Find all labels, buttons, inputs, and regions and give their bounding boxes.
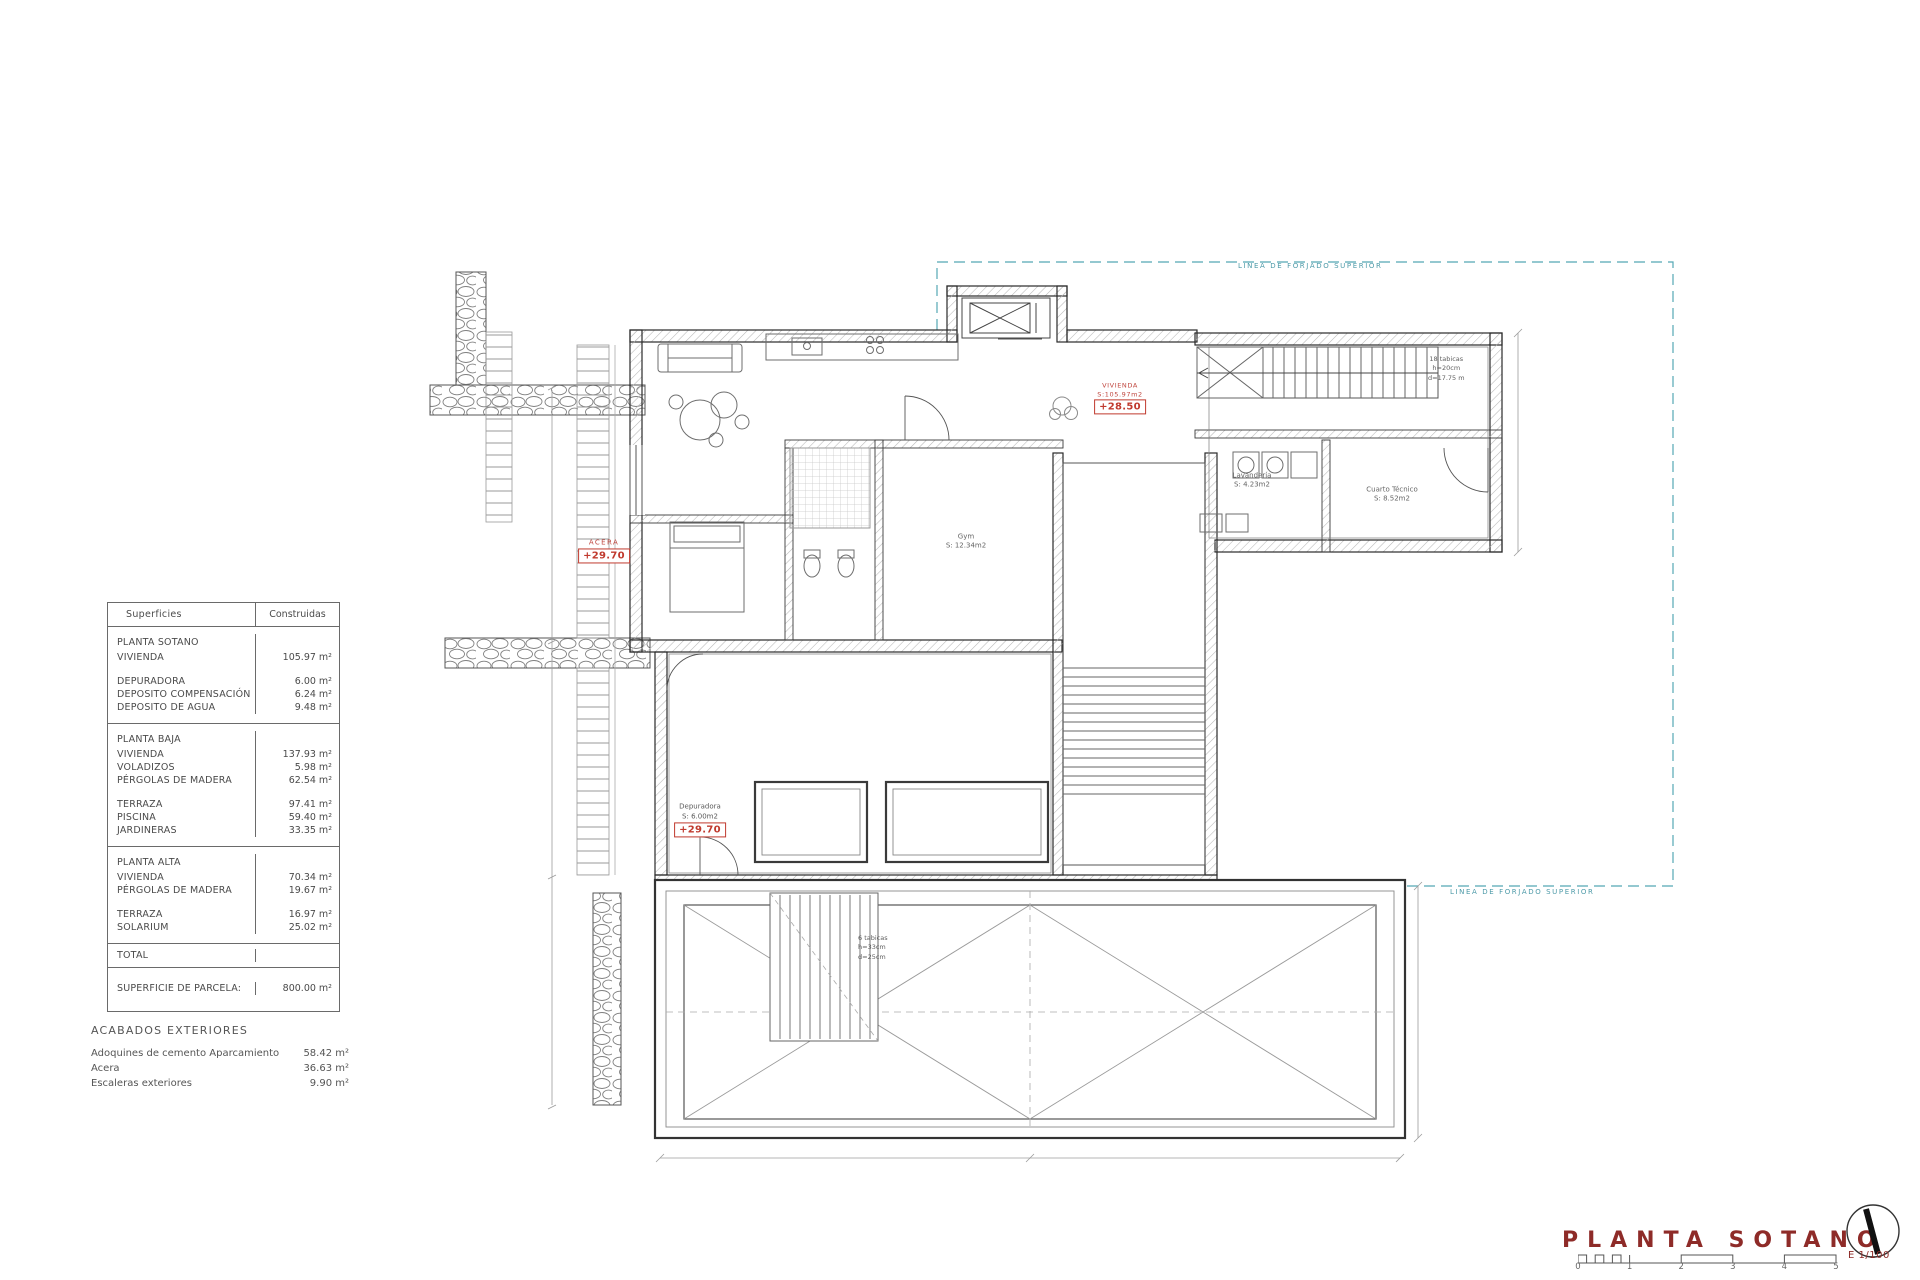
row-value: 16.97 m² [255, 908, 339, 921]
table-row: PÉRGOLAS DE MADERA19.67 m² [108, 884, 339, 897]
row-label: VIVIENDA [108, 652, 255, 663]
scale-tick: 4 [1782, 1262, 1787, 1272]
finish-label: Acera [91, 1061, 120, 1076]
depuradora-level-label: Depuradora S: 6.00m2 +29.70 [674, 802, 726, 837]
row-label: TERRAZA [108, 799, 255, 810]
lavanderia-room-label: Lavandería S: 4.23m2 [1233, 472, 1272, 491]
row-value [255, 854, 339, 871]
table-row [108, 664, 339, 675]
table-section: PLANTA ALTAVIVIENDA70.34 m²PÉRGOLAS DE M… [108, 847, 339, 944]
row-label: VIVIENDA [108, 749, 255, 760]
cuarto-tecnico-name: Cuarto Técnico [1366, 486, 1418, 495]
col-superficies: Superficies [108, 609, 255, 620]
row-label: PLANTA SOTANO [108, 637, 255, 648]
acera-level-box: +29.70 [578, 549, 630, 564]
finish-label: Escaleras exteriores [91, 1076, 192, 1091]
finish-row: Adoquines de cemento Aparcamiento58.42 m… [91, 1046, 349, 1061]
exterior-finishes-heading: ACABADOS EXTERIORES [91, 1024, 349, 1037]
depuradora-area: S: 6.00m2 [682, 813, 718, 822]
scale-tick: 5 [1833, 1262, 1838, 1272]
furniture [658, 334, 1317, 612]
finish-row: Escaleras exteriores9.90 m² [91, 1076, 349, 1091]
areas-table-body: PLANTA SOTANOVIVIENDA105.97 m²DEPURADORA… [108, 627, 339, 944]
row-label: VOLADIZOS [108, 762, 255, 773]
row-label: DEPOSITO COMPENSACIÓN [108, 689, 255, 700]
gym-room-label: Gym S: 12.34m2 [946, 533, 986, 552]
table-row: PISCINA59.40 m² [108, 811, 339, 824]
table-row: SOLARIUM25.02 m² [108, 921, 339, 934]
table-row: PLANTA SOTANO [108, 634, 339, 651]
row-value [255, 634, 339, 651]
table-row: VIVIENDA137.93 m² [108, 748, 339, 761]
row-value: 33.35 m² [255, 824, 339, 837]
acera-name: ACERA [589, 538, 619, 547]
partition-walls [630, 430, 1502, 640]
parcel-value: 800.00 m² [255, 982, 339, 995]
finish-value: 36.63 m² [303, 1061, 349, 1076]
finish-value: 9.90 m² [310, 1076, 349, 1091]
row-value: 6.00 m² [255, 675, 339, 688]
table-row: DEPOSITO COMPENSACIÓN6.24 m² [108, 688, 339, 701]
row-label: VIVIENDA [108, 872, 255, 883]
row-label: PISCINA [108, 812, 255, 823]
row-label: DEPOSITO DE AGUA [108, 702, 255, 713]
exterior-stair-note: 6 tabicas h=33cm d=25cm [858, 934, 888, 962]
gym-area: S: 12.34m2 [946, 542, 986, 551]
acera-level-label: ACERA +29.70 [578, 538, 630, 563]
scale-tick: 0 [1575, 1262, 1580, 1272]
roof-line-label-top: LINEA DE FORJADO SUPERIOR [1238, 262, 1382, 270]
row-value [255, 897, 339, 908]
vivienda-name: VIVIENDA [1102, 381, 1138, 389]
table-row: PÉRGOLAS DE MADERA62.54 m² [108, 774, 339, 787]
depuradora-name: Depuradora [679, 802, 721, 811]
vivienda-level-label: VIVIENDA S:105.97m2 +28.50 [1094, 381, 1146, 414]
row-label: PÉRGOLAS DE MADERA [108, 775, 255, 786]
elevator-symbol [962, 298, 1050, 338]
finish-row: Acera36.63 m² [91, 1061, 349, 1076]
row-label: PLANTA BAJA [108, 734, 255, 745]
finish-value: 58.42 m² [303, 1046, 349, 1061]
row-value: 70.34 m² [255, 871, 339, 884]
upper-staircase [1197, 347, 1438, 398]
table-row: VIVIENDA105.97 m² [108, 651, 339, 664]
vivienda-level-box: +28.50 [1094, 400, 1146, 415]
row-value: 9.48 m² [255, 701, 339, 714]
drawing-sheet: LINEA DE FORJADO SUPERIOR LINEA DE FORJA… [0, 0, 1920, 1280]
row-label: PLANTA ALTA [108, 857, 255, 868]
table-section: PLANTA SOTANOVIVIENDA105.97 m²DEPURADORA… [108, 627, 339, 724]
table-row [108, 787, 339, 798]
interior-stair-note: 18 tabicas h=20cm d=17.75 m [1428, 355, 1465, 383]
table-row: PLANTA ALTA [108, 854, 339, 871]
areas-table: Superficies Construidas PLANTA SOTANOVIV… [107, 602, 340, 1012]
exterior-finishes: ACABADOS EXTERIORES Adoquines de cemento… [91, 1024, 349, 1091]
total-label: TOTAL [108, 950, 255, 961]
water-deposits [755, 782, 1048, 862]
row-value [255, 664, 339, 675]
table-row: TERRAZA16.97 m² [108, 908, 339, 921]
table-row: VOLADIZOS5.98 m² [108, 761, 339, 774]
vivienda-area: S:105.97m2 [1097, 391, 1143, 399]
finish-label: Adoquines de cemento Aparcamiento [91, 1046, 279, 1061]
table-row: TERRAZA97.41 m² [108, 798, 339, 811]
table-row [108, 897, 339, 908]
row-label: SOLARIUM [108, 922, 255, 933]
parcel-label: SUPERFICIE DE PARCELA: [108, 983, 255, 994]
scale-bar-graphic [1578, 1251, 1840, 1264]
scale-ratio-label: E 1/100 [1848, 1250, 1890, 1261]
gym-name: Gym [946, 533, 986, 542]
row-value [255, 787, 339, 798]
row-value: 59.40 m² [255, 811, 339, 824]
row-value: 6.24 m² [255, 688, 339, 701]
exterior-finishes-list: Adoquines de cemento Aparcamiento58.42 m… [91, 1046, 349, 1091]
scale-tick: 1 [1627, 1262, 1632, 1272]
table-row: JARDINERAS33.35 m² [108, 824, 339, 837]
table-row: VIVIENDA70.34 m² [108, 871, 339, 884]
table-section: PLANTA BAJAVIVIENDA137.93 m²VOLADIZOS5.9… [108, 724, 339, 847]
scale-tick: 3 [1730, 1262, 1735, 1272]
row-value: 25.02 m² [255, 921, 339, 934]
areas-table-header: Superficies Construidas [108, 603, 339, 627]
cuarto-tecnico-room-label: Cuarto Técnico S: 8.52m2 [1366, 486, 1418, 505]
cuarto-tecnico-area: S: 8.52m2 [1366, 495, 1418, 504]
row-value: 137.93 m² [255, 748, 339, 761]
row-value: 19.67 m² [255, 884, 339, 897]
graphic-scale-bar: 012345 E 1/100 [1578, 1249, 1888, 1277]
pool-deck [655, 880, 1405, 1138]
lavanderia-area: S: 4.23m2 [1233, 481, 1272, 490]
total-section: TOTAL [108, 943, 339, 968]
row-label: DEPURADORA [108, 676, 255, 687]
row-value: 5.98 m² [255, 761, 339, 774]
parcel-section: SUPERFICIE DE PARCELA: 800.00 m² [108, 968, 339, 1011]
row-value [255, 731, 339, 748]
depuradora-level-box: +29.70 [674, 823, 726, 838]
lavanderia-name: Lavandería [1233, 472, 1272, 481]
table-row: PLANTA BAJA [108, 731, 339, 748]
row-value: 97.41 m² [255, 798, 339, 811]
central-staircase [1063, 463, 1205, 865]
table-row: DEPOSITO DE AGUA9.48 m² [108, 701, 339, 714]
scale-tick: 2 [1678, 1262, 1683, 1272]
row-label: PÉRGOLAS DE MADERA [108, 885, 255, 896]
roof-line-label-bottom: LINEA DE FORJADO SUPERIOR [1450, 888, 1594, 896]
table-row: DEPURADORA6.00 m² [108, 675, 339, 688]
site-retaining-walls [430, 272, 650, 1105]
row-label: TERRAZA [108, 909, 255, 920]
row-value: 62.54 m² [255, 774, 339, 787]
row-value: 105.97 m² [255, 651, 339, 664]
col-construidas: Construidas [255, 603, 339, 626]
row-label: JARDINERAS [108, 825, 255, 836]
